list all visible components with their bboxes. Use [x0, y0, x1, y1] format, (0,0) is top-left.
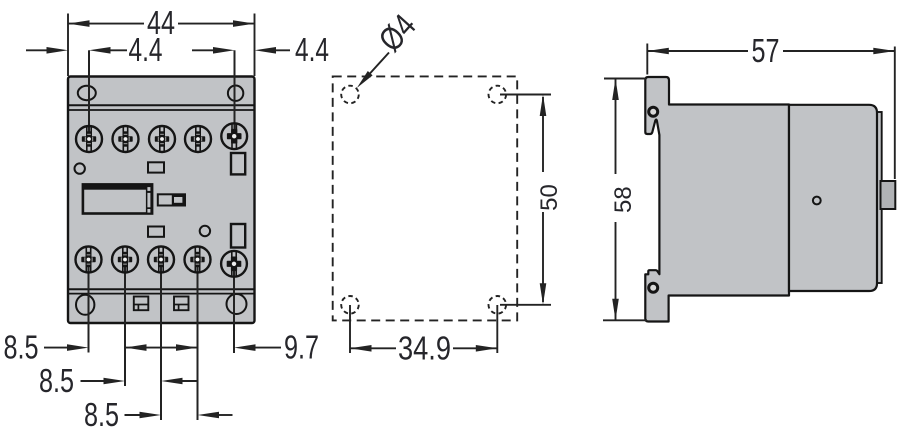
svg-text:9.7: 9.7 — [284, 328, 319, 365]
svg-text:8.5: 8.5 — [39, 362, 74, 399]
svg-text:50: 50 — [536, 184, 563, 211]
svg-text:Ø4: Ø4 — [371, 7, 423, 59]
svg-text:4.4: 4.4 — [129, 31, 163, 68]
svg-text:34.9: 34.9 — [398, 329, 451, 366]
svg-text:8.5: 8.5 — [84, 396, 119, 433]
svg-text:57: 57 — [752, 32, 780, 69]
svg-text:58: 58 — [610, 186, 637, 213]
svg-text:8.5: 8.5 — [4, 328, 39, 365]
svg-text:4.4: 4.4 — [295, 31, 329, 68]
